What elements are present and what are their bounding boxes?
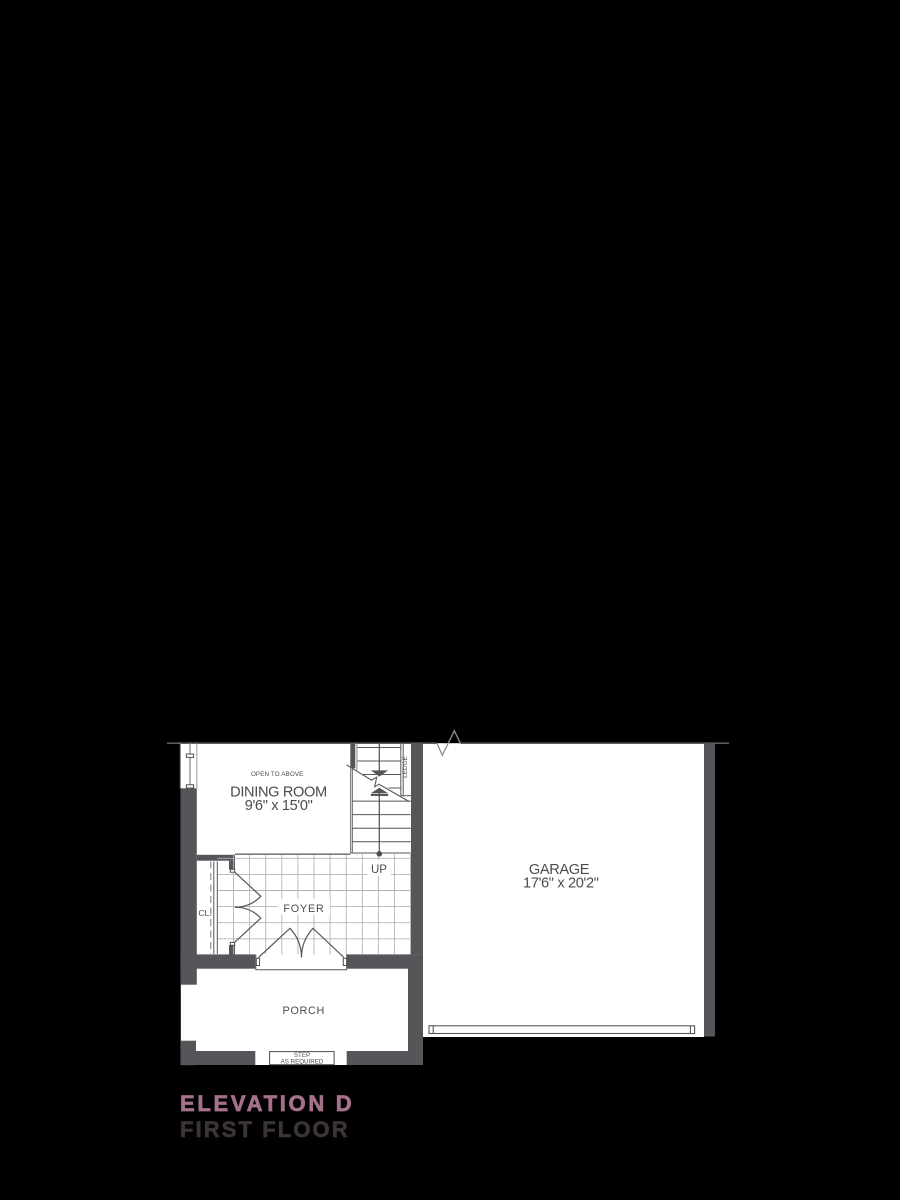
- svg-text:LEDGE: LEDGE: [402, 756, 409, 778]
- svg-text:OPEN TO ABOVE: OPEN TO ABOVE: [251, 771, 304, 778]
- svg-text:17'6" x 20'2": 17'6" x 20'2": [523, 876, 599, 892]
- svg-text:9'6" x 15'0": 9'6" x 15'0": [245, 798, 313, 814]
- svg-text:CL.: CL.: [198, 908, 211, 918]
- svg-text:UP: UP: [371, 864, 387, 876]
- svg-text:PORCH: PORCH: [283, 1005, 326, 1017]
- svg-text:ELEVATION D: ELEVATION D: [180, 1091, 354, 1116]
- svg-text:AS REQUIRED: AS REQUIRED: [281, 1058, 324, 1065]
- svg-text:FIRST FLOOR: FIRST FLOOR: [180, 1117, 350, 1142]
- svg-text:FOYER: FOYER: [283, 903, 324, 915]
